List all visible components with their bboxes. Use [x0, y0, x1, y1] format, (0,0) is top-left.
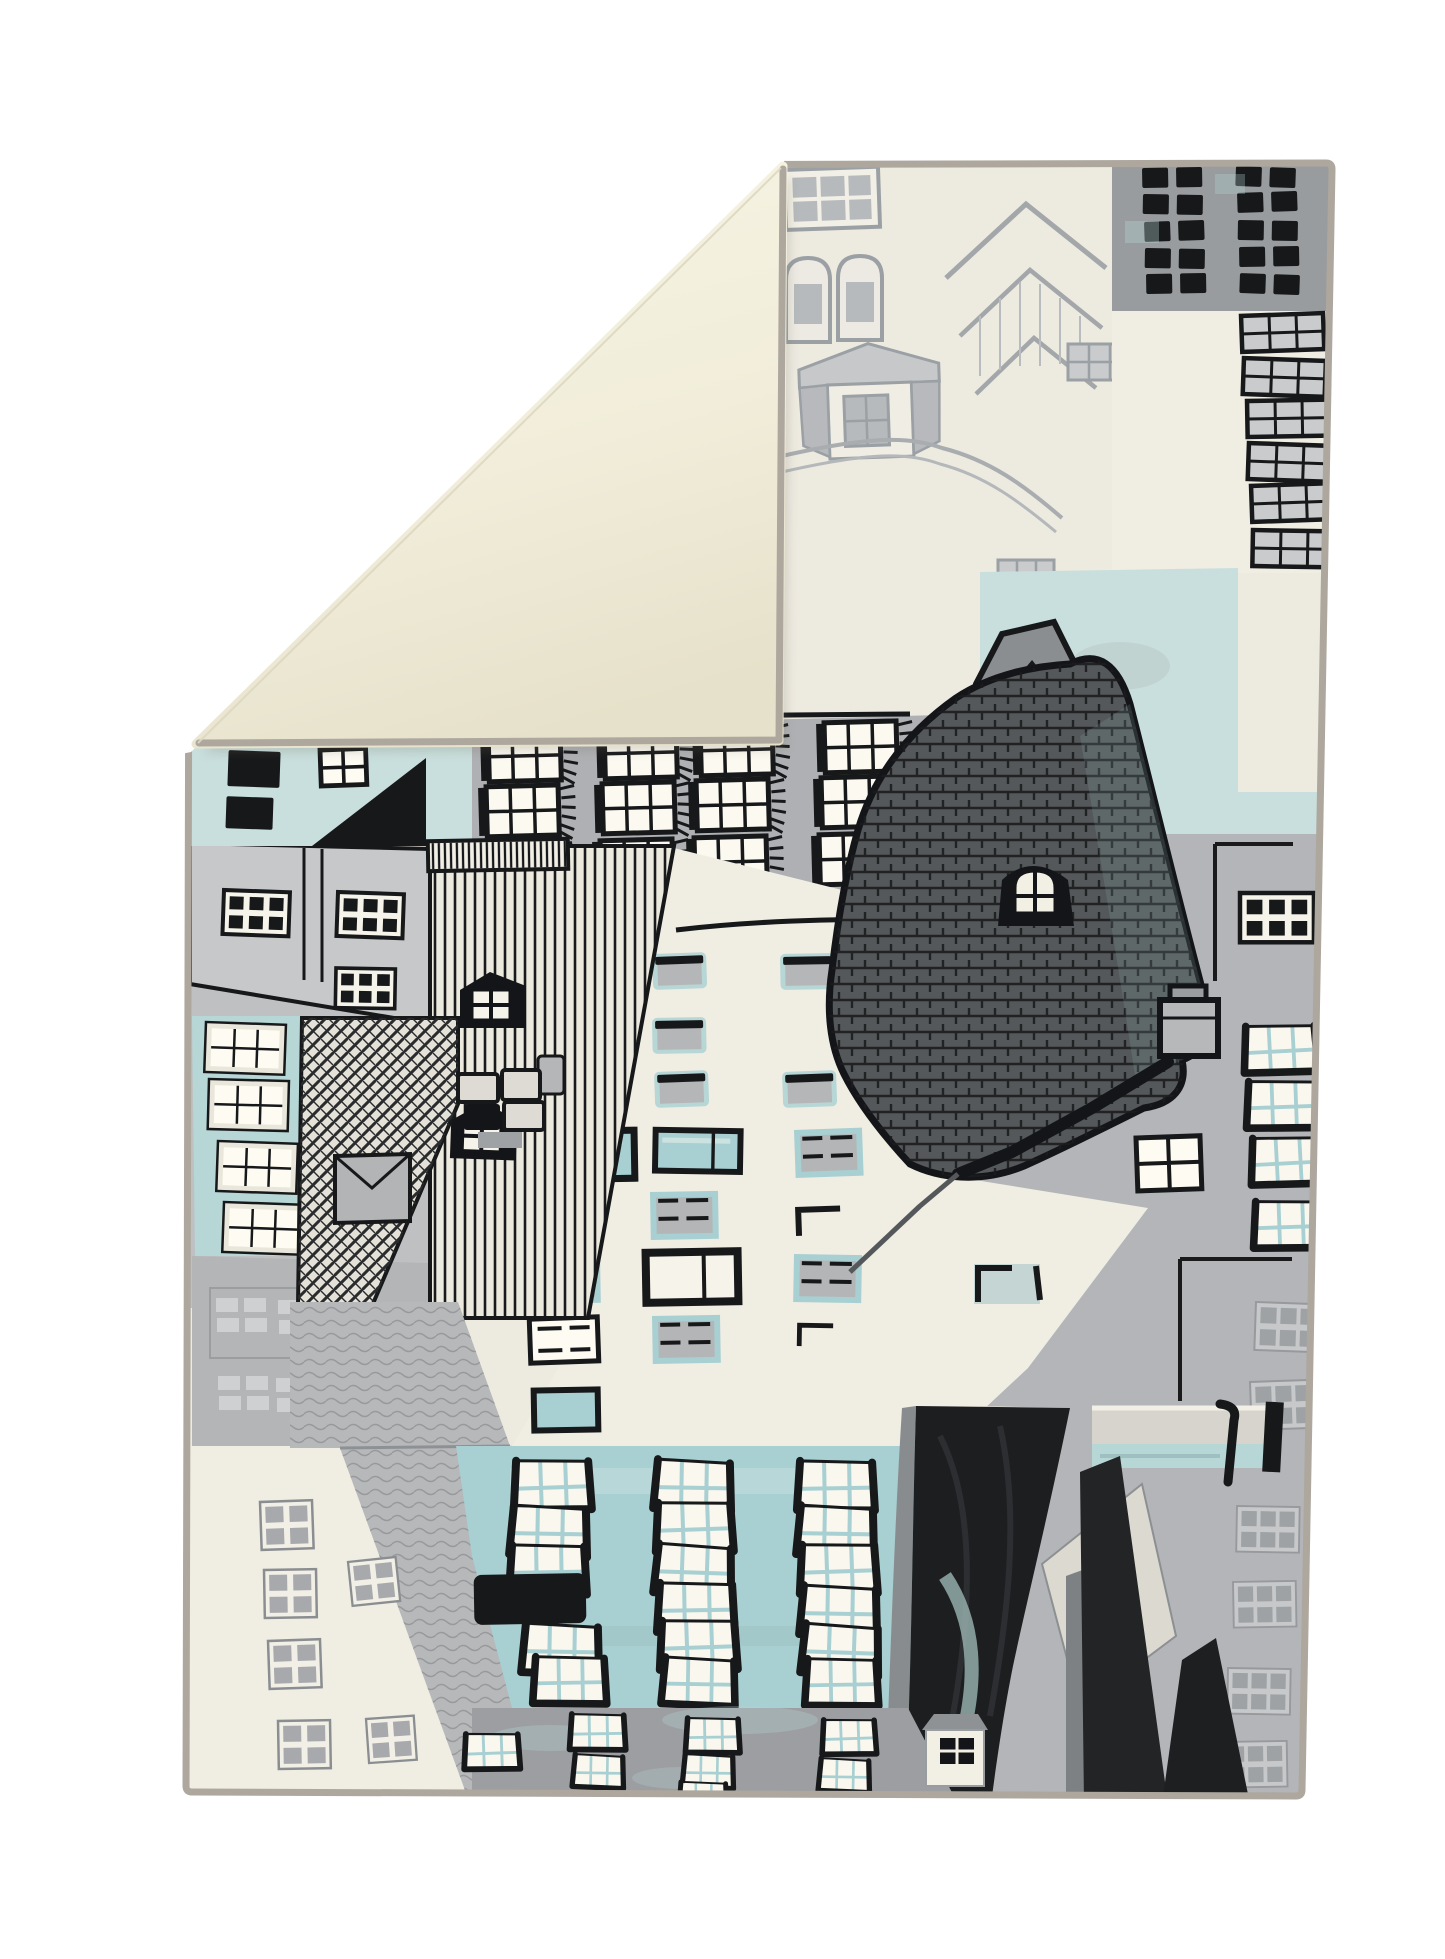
window-row — [1247, 400, 1330, 437]
window-grey22 — [264, 1569, 317, 1618]
striped-chimney-band — [428, 839, 569, 871]
window — [818, 1758, 870, 1793]
window — [532, 1655, 607, 1705]
black-blob — [474, 1573, 587, 1625]
window-aqua-grey — [794, 1128, 864, 1178]
window — [463, 1732, 520, 1771]
window-row — [1248, 443, 1331, 482]
window-darkpanes — [1240, 893, 1314, 942]
window — [1245, 1079, 1321, 1130]
aqua-facade — [456, 1446, 944, 1708]
window — [216, 1141, 298, 1194]
black-window — [227, 750, 280, 788]
white-strip-windows — [1112, 311, 1337, 573]
window-darkpanes — [335, 968, 395, 1009]
ghost-window — [1233, 1581, 1296, 1628]
ghost-window — [1227, 1668, 1290, 1715]
window — [661, 1657, 736, 1707]
window-lintel — [782, 1070, 837, 1108]
window — [821, 1718, 877, 1756]
window-row — [1251, 483, 1334, 522]
small-white-house — [922, 1714, 988, 1786]
window-blackframe — [646, 1251, 739, 1303]
rug-illustration — [40, 16, 1445, 1943]
window-grey22 — [260, 1500, 314, 1550]
window-row — [1243, 358, 1326, 397]
window-grey22 — [348, 1557, 400, 1606]
grey-apartment-block — [1112, 156, 1337, 311]
window-grey22 — [268, 1639, 322, 1689]
window — [204, 1022, 286, 1075]
window — [320, 748, 367, 786]
window-aqua-grey — [652, 1315, 721, 1364]
window-lintel — [652, 1017, 707, 1054]
ghost-window — [1236, 1506, 1299, 1553]
window-dashes — [529, 1317, 598, 1363]
window-darkpanes — [222, 890, 289, 936]
window-grey22 — [278, 1720, 331, 1769]
window — [685, 1717, 740, 1754]
product-photo — [40, 16, 1445, 1943]
window-lintel — [780, 953, 835, 990]
black-window — [225, 796, 273, 830]
window — [569, 1713, 626, 1751]
window-lintel — [654, 1070, 709, 1108]
window-grey22 — [366, 1716, 417, 1763]
window-lintel — [652, 952, 707, 990]
window — [572, 1754, 624, 1789]
window — [1242, 1023, 1319, 1075]
window-aqua-large — [655, 1130, 741, 1172]
window — [804, 1657, 879, 1707]
window — [208, 1079, 289, 1131]
window-aqua-grey — [793, 1254, 862, 1303]
sash-window — [1136, 1136, 1202, 1191]
window-darkpanes — [336, 892, 403, 938]
window-row — [1241, 313, 1324, 352]
window-aqua-single — [534, 1389, 599, 1430]
window-aqua-grey — [650, 1191, 719, 1240]
window — [222, 1202, 304, 1255]
window — [512, 1458, 592, 1512]
